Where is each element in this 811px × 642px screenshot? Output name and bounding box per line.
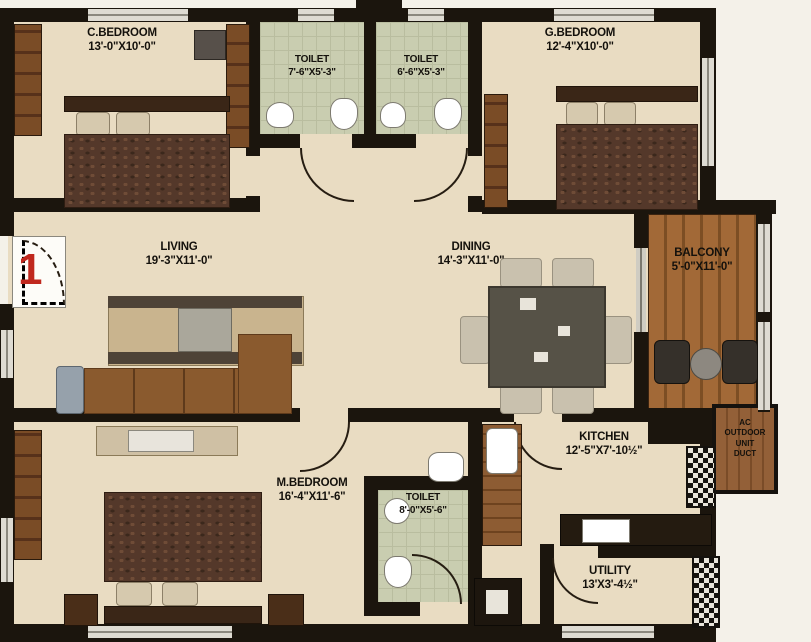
window-cbedroom-top bbox=[86, 9, 190, 21]
label-kitchen: KITCHEN 12'-5"X7'-10½" bbox=[520, 430, 688, 459]
window-living-left bbox=[1, 328, 13, 380]
window-mbedroom-bottom bbox=[86, 626, 234, 638]
dining-table bbox=[488, 286, 606, 388]
mbedroom-pillow bbox=[162, 582, 198, 606]
room-name: TOILET bbox=[260, 54, 364, 67]
gbedroom-wardrobe bbox=[484, 94, 508, 208]
wall-toilet-divider bbox=[364, 22, 376, 138]
cbedroom-pillow bbox=[76, 112, 110, 136]
cbedroom-bed bbox=[64, 134, 230, 208]
dining-chair bbox=[602, 316, 632, 364]
window-mbedroom-left bbox=[1, 516, 13, 584]
label-living: LIVING 19'-3"X11'-0" bbox=[94, 240, 264, 269]
mbedroom-bed bbox=[104, 492, 262, 582]
window-toilet2-vent bbox=[406, 9, 446, 21]
mbedroom-tv bbox=[128, 430, 194, 452]
dining-chair bbox=[500, 384, 542, 414]
kitchen-sink bbox=[486, 428, 518, 474]
room-dims: 16'-4"X11'-6" bbox=[228, 490, 396, 504]
toilet2-wc bbox=[434, 98, 462, 130]
room-dims: 7'-6"X5'-3" bbox=[260, 67, 364, 80]
room-dims: 8'-0"X5'-6" bbox=[376, 505, 470, 518]
balcony-sliding-door bbox=[636, 248, 646, 332]
dining-table-setting bbox=[558, 326, 570, 336]
room-name: LIVING bbox=[94, 240, 264, 254]
toilet1-basin bbox=[266, 102, 294, 128]
room-dims: 12'-4"X10'-0" bbox=[498, 40, 662, 54]
living-sofa-chaise bbox=[238, 334, 292, 414]
dining-table-setting bbox=[520, 298, 536, 310]
wall-dining-kitchen-a bbox=[356, 408, 514, 422]
label-toilet1: TOILET 7'-6"X5'-3" bbox=[260, 54, 364, 79]
shaft-kitchen bbox=[686, 446, 716, 508]
unit-number: 1 bbox=[18, 248, 42, 292]
shaft-utility bbox=[692, 556, 720, 628]
gbedroom-pillow bbox=[566, 102, 598, 126]
room-dims: 12'-5"X7'-10½" bbox=[520, 444, 688, 458]
room-name: DINING bbox=[386, 240, 556, 254]
label-dining: DINING 14'-3"X11'-0" bbox=[386, 240, 556, 269]
room-name: TOILET bbox=[374, 54, 468, 67]
toilet2-basin bbox=[380, 102, 406, 128]
balcony-chair bbox=[722, 340, 758, 384]
room-dims: 5'-0"X11'-0" bbox=[648, 260, 756, 274]
room-name: M.BEDROOM bbox=[228, 476, 396, 490]
window-toilet1-vent bbox=[296, 9, 336, 21]
window-gbedroom-right bbox=[702, 56, 714, 168]
balcony-chair bbox=[654, 340, 690, 384]
wall-toilet3-bottom bbox=[364, 602, 420, 616]
wall-utility-top-a bbox=[540, 544, 554, 558]
living-tv-unit-shelf bbox=[108, 296, 302, 308]
window-balcony-right-a bbox=[758, 222, 770, 314]
label-gbedroom: G.BEDROOM 12'-4"X10'-0" bbox=[498, 26, 662, 55]
window-balcony-right-b bbox=[758, 320, 770, 412]
room-name: TOILET bbox=[376, 492, 470, 505]
room-dims: 6'-6"X5'-3" bbox=[374, 67, 468, 80]
wall-cbedroom-right-stub bbox=[246, 196, 260, 212]
wash-basin bbox=[428, 452, 464, 482]
label-cbedroom: C.BEDROOM 13'-0"X10'-0" bbox=[44, 26, 200, 55]
wall-balcony-left-a bbox=[634, 214, 648, 248]
room-name: G.BEDROOM bbox=[498, 26, 662, 40]
gbedroom-pillow bbox=[604, 102, 636, 126]
room-dims: 19'-3"X11'-0" bbox=[94, 254, 264, 268]
room-dims: 13'-0"X10'-0" bbox=[44, 40, 200, 54]
wall-gbedroom-left-stub bbox=[468, 196, 482, 212]
wall-toilets-bottom-a bbox=[260, 134, 300, 148]
balcony-table bbox=[690, 348, 722, 380]
label-utility: UTILITY 13'X3'-4½" bbox=[552, 564, 668, 593]
wall-gbedroom-left bbox=[468, 8, 482, 156]
room-dims: 14'-3"X11'-0" bbox=[386, 254, 556, 268]
dining-chair bbox=[460, 316, 490, 364]
cbedroom-pillow bbox=[116, 112, 150, 136]
toilet1-wc bbox=[330, 98, 358, 130]
dining-chair bbox=[552, 384, 594, 414]
wall-top-bump bbox=[356, 0, 402, 10]
mbedroom-side-table bbox=[64, 594, 98, 626]
dining-chair bbox=[552, 258, 594, 288]
toilet3-wc bbox=[384, 556, 412, 588]
label-toilet2: TOILET 6'-6"X5'-3" bbox=[374, 54, 468, 79]
window-gbedroom-top bbox=[552, 9, 656, 21]
room-name: BALCONY bbox=[648, 246, 756, 260]
label-mbedroom: M.BEDROOM 16'-4"X11'-6" bbox=[228, 476, 396, 505]
window-utility-bottom bbox=[560, 626, 656, 638]
mbedroom-wardrobe bbox=[14, 430, 42, 560]
dining-table-setting bbox=[534, 352, 548, 362]
mbedroom-side-table bbox=[268, 594, 304, 626]
kitchen-stove bbox=[582, 519, 630, 543]
cbedroom-wardrobe-right bbox=[226, 24, 250, 148]
floor-plan: AC OUTDOOR UNIT DUCT 1 bbox=[0, 0, 811, 642]
living-armchair bbox=[56, 366, 84, 414]
gbedroom-bed bbox=[556, 124, 698, 210]
gbedroom-bed-headboard bbox=[556, 86, 698, 102]
mbedroom-pillow bbox=[116, 582, 152, 606]
kitchen-appliance-door bbox=[486, 590, 508, 614]
room-name: UTILITY bbox=[552, 564, 668, 578]
label-balcony: BALCONY 5'-0"X11'-0" bbox=[648, 246, 756, 275]
room-name: C.BEDROOM bbox=[44, 26, 200, 40]
cbedroom-wardrobe-left bbox=[14, 24, 42, 136]
room-name: KITCHEN bbox=[520, 430, 688, 444]
wall-toilets-bottom-b bbox=[352, 134, 416, 148]
room-dims: 13'X3'-4½" bbox=[552, 578, 668, 592]
cbedroom-bed-headboard bbox=[64, 96, 230, 112]
living-tv bbox=[178, 308, 232, 352]
label-toilet3: TOILET 8'-0"X5'-6" bbox=[376, 492, 470, 517]
ac-duct-label: AC OUTDOOR UNIT DUCT bbox=[714, 418, 776, 460]
mbedroom-bed-headboard bbox=[104, 606, 262, 624]
